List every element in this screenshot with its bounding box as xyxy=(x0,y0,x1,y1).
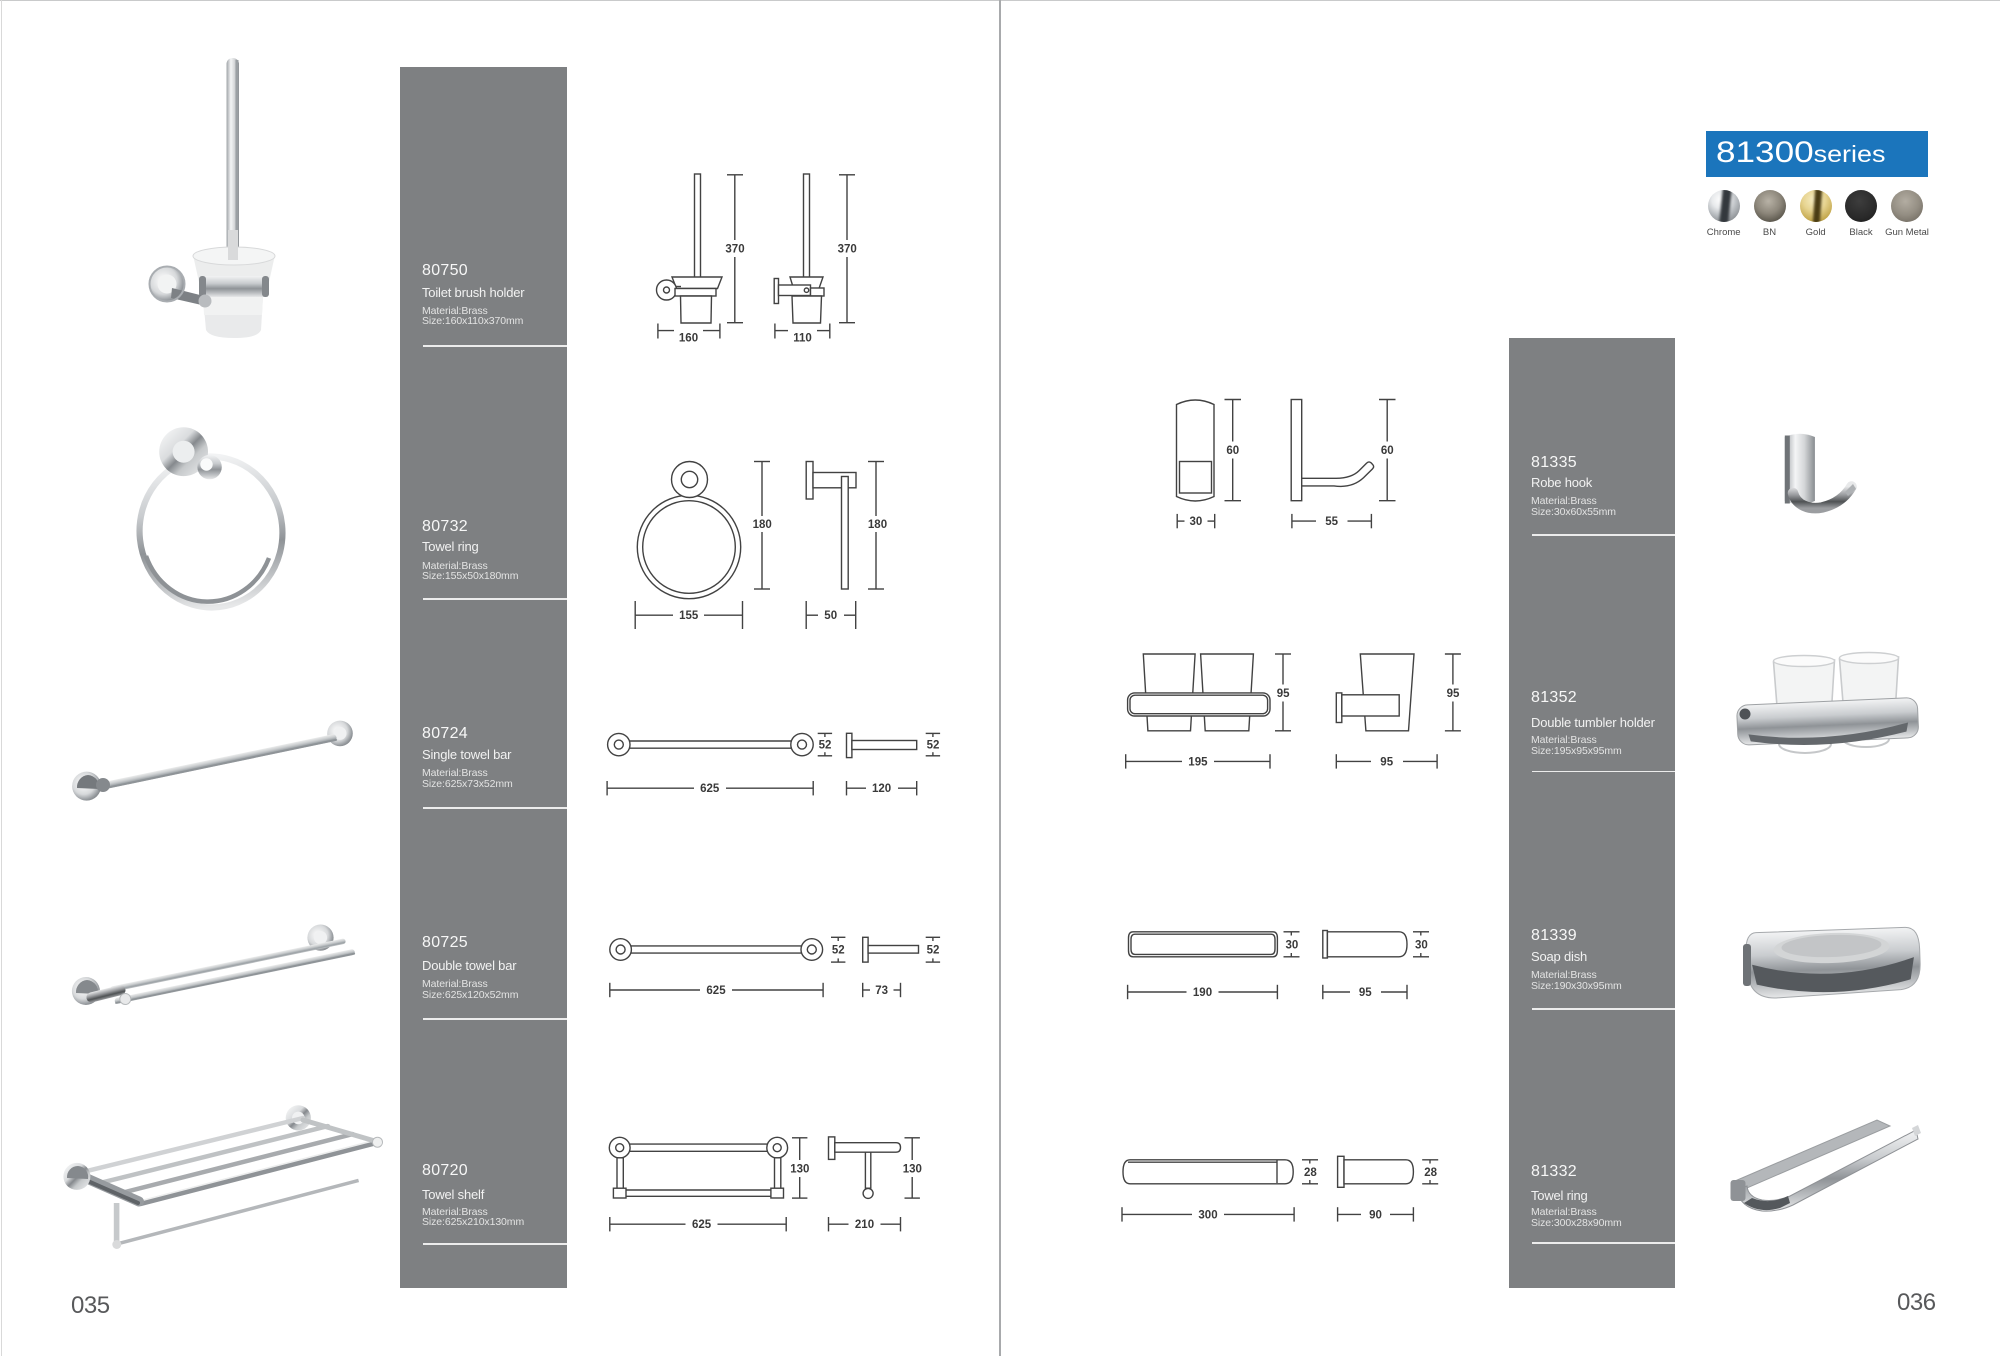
svg-text:30: 30 xyxy=(1286,939,1299,951)
svg-text:60: 60 xyxy=(1381,445,1394,457)
svg-text:625: 625 xyxy=(706,985,726,997)
svg-text:190: 190 xyxy=(1193,987,1212,999)
svg-text:95: 95 xyxy=(1277,688,1290,700)
svg-text:30: 30 xyxy=(1415,939,1428,951)
svg-text:210: 210 xyxy=(855,1219,874,1231)
svg-text:625: 625 xyxy=(692,1219,712,1231)
svg-text:28: 28 xyxy=(1304,1167,1317,1179)
svg-text:370: 370 xyxy=(838,244,857,256)
svg-text:130: 130 xyxy=(903,1163,922,1175)
svg-text:90: 90 xyxy=(1369,1209,1382,1221)
svg-text:52: 52 xyxy=(927,740,940,752)
svg-text:55: 55 xyxy=(1325,516,1338,528)
svg-text:95: 95 xyxy=(1380,756,1393,768)
svg-text:30: 30 xyxy=(1190,516,1203,528)
svg-text:52: 52 xyxy=(832,945,845,957)
svg-text:28: 28 xyxy=(1424,1167,1437,1179)
svg-text:625: 625 xyxy=(700,783,720,795)
svg-text:52: 52 xyxy=(927,945,940,957)
svg-text:95: 95 xyxy=(1447,688,1460,700)
svg-text:180: 180 xyxy=(868,519,887,531)
svg-text:300: 300 xyxy=(1198,1209,1217,1221)
svg-text:130: 130 xyxy=(790,1163,809,1175)
svg-text:50: 50 xyxy=(824,610,837,622)
svg-text:120: 120 xyxy=(872,783,891,795)
svg-text:52: 52 xyxy=(819,740,832,752)
svg-text:95: 95 xyxy=(1359,987,1372,999)
svg-text:180: 180 xyxy=(753,519,772,531)
svg-text:73: 73 xyxy=(875,985,888,997)
svg-text:160: 160 xyxy=(679,333,698,345)
svg-text:370: 370 xyxy=(725,244,744,256)
svg-text:155: 155 xyxy=(679,610,699,622)
svg-text:195: 195 xyxy=(1188,756,1208,768)
svg-text:60: 60 xyxy=(1226,445,1239,457)
svg-text:110: 110 xyxy=(793,333,812,345)
